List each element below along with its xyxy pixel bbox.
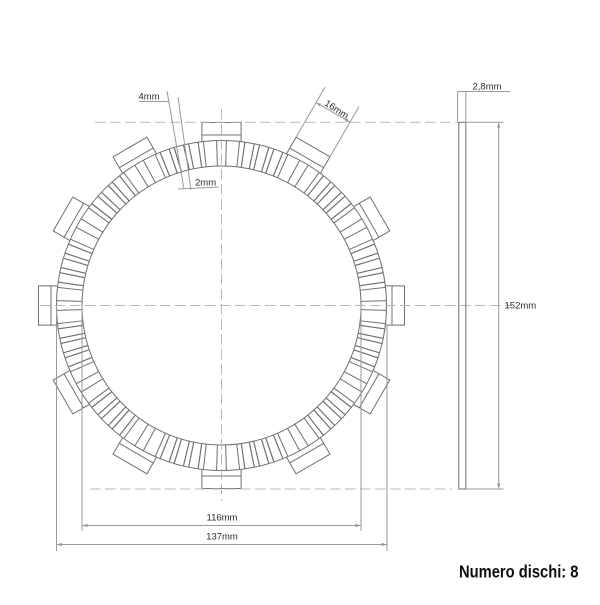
svg-text:137mm: 137mm bbox=[206, 532, 238, 543]
svg-text:4mm: 4mm bbox=[139, 92, 160, 103]
svg-text:Numero dischi: 8: Numero dischi: 8 bbox=[459, 562, 579, 582]
svg-text:2,8mm: 2,8mm bbox=[473, 82, 502, 93]
svg-text:116mm: 116mm bbox=[207, 513, 238, 524]
svg-text:152mm: 152mm bbox=[505, 301, 537, 312]
svg-text:2mm: 2mm bbox=[195, 178, 216, 189]
svg-text:16mm: 16mm bbox=[322, 98, 350, 122]
